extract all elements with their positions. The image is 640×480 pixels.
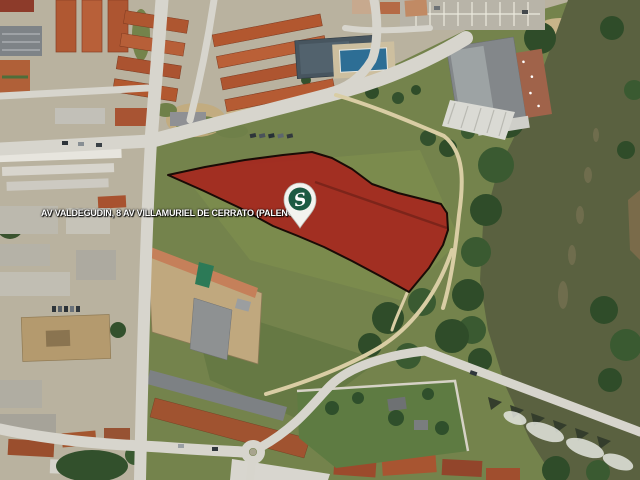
satellite-imagery bbox=[0, 0, 640, 480]
address-label: AV VALDEGUDIN, 8 AV VILLAMURIEL DE CERRA… bbox=[41, 208, 305, 219]
aerial-map-view: AV VALDEGUDIN, 8 AV VILLAMURIEL DE CERRA… bbox=[0, 0, 640, 480]
property-location-pin[interactable]: S bbox=[278, 180, 322, 232]
